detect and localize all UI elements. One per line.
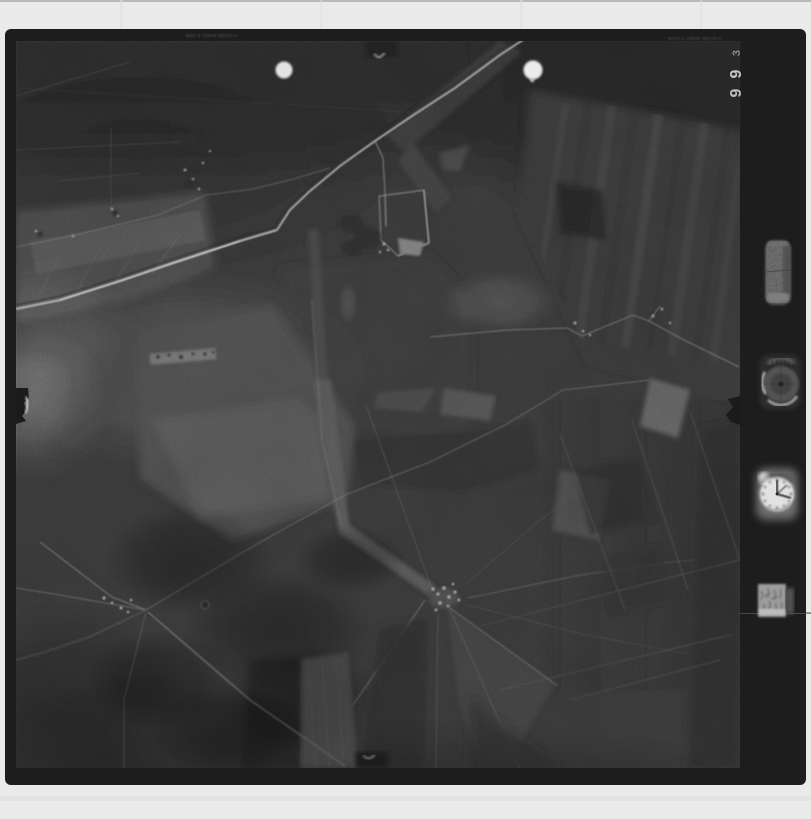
svg-text:3: 3 (731, 50, 743, 56)
svg-text:9: 9 (728, 88, 745, 97)
svg-text:M00 6 10846 58123-A: M00 6 10846 58123-A (186, 33, 238, 38)
svg-text:9: 9 (728, 69, 745, 78)
svg-text:8014 6 10846 58123-A: 8014 6 10846 58123-A (668, 36, 722, 41)
